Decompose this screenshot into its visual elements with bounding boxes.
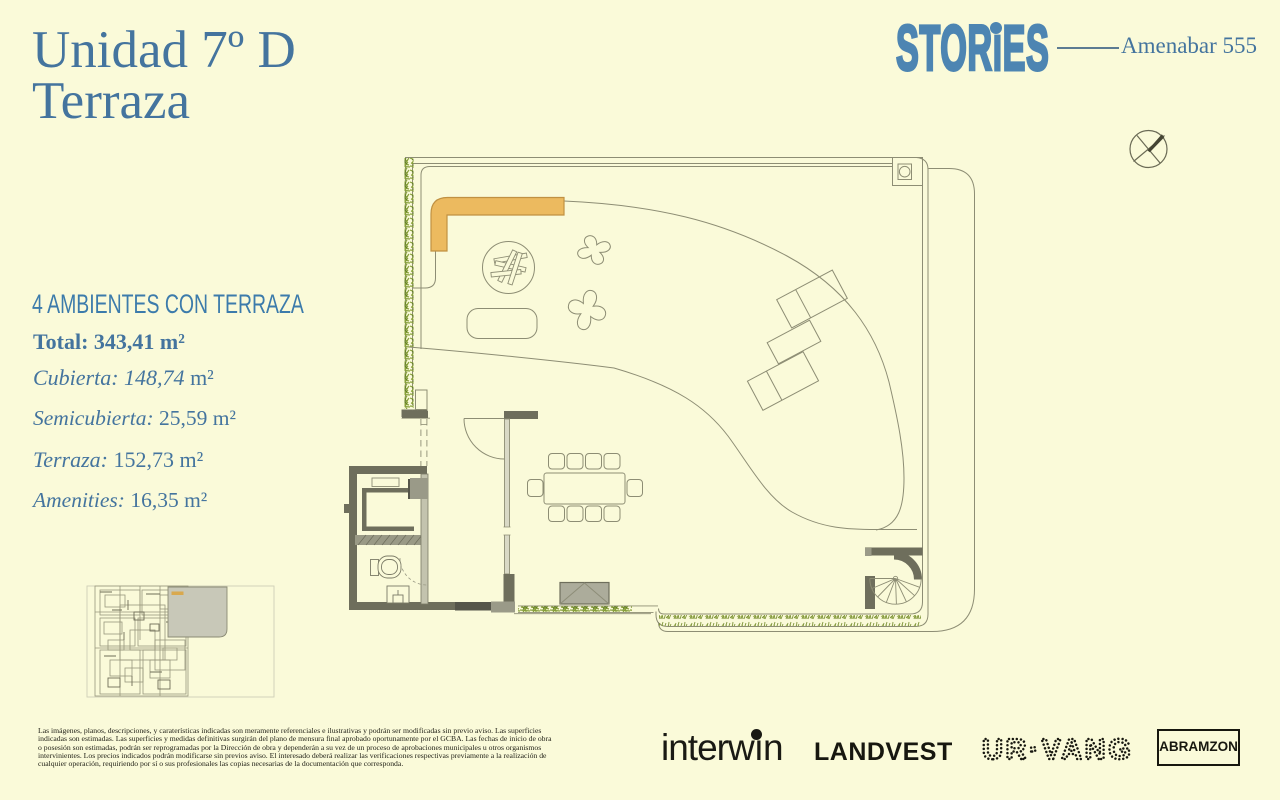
- svg-text:interwın: interwın: [661, 727, 783, 768]
- svg-text:UR·VANG: UR·VANG: [982, 734, 1133, 766]
